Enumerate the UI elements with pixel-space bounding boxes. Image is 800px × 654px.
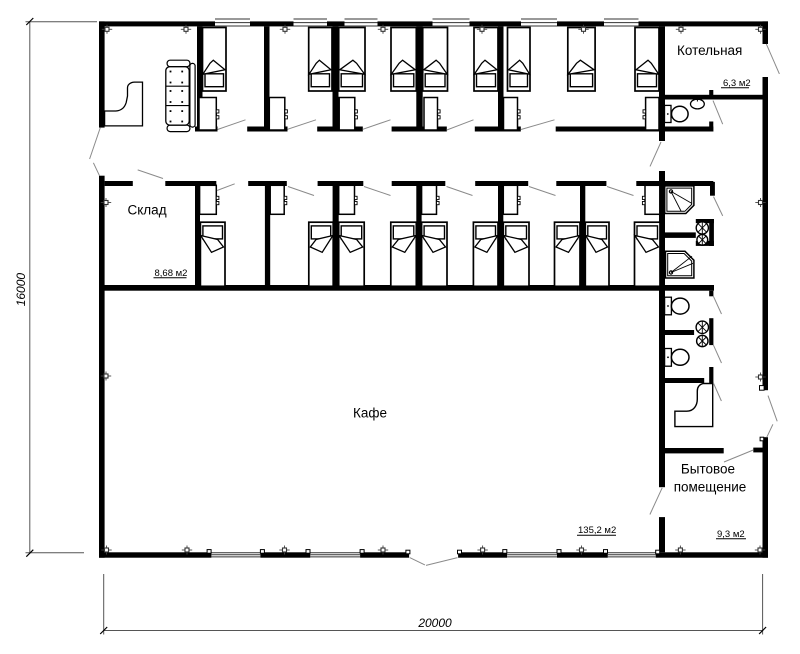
svg-text:16000: 16000 xyxy=(14,273,28,307)
svg-text:Кафе: Кафе xyxy=(353,406,387,421)
svg-text:20000: 20000 xyxy=(417,616,452,630)
svg-text:Котельная: Котельная xyxy=(677,43,742,58)
svg-text:Бытовое: Бытовое xyxy=(681,462,735,477)
svg-text:помещение: помещение xyxy=(674,480,747,495)
svg-text:8,68 м2: 8,68 м2 xyxy=(155,268,188,279)
svg-text:Склад: Склад xyxy=(128,202,167,217)
svg-text:135,2 м2: 135,2 м2 xyxy=(578,525,616,536)
